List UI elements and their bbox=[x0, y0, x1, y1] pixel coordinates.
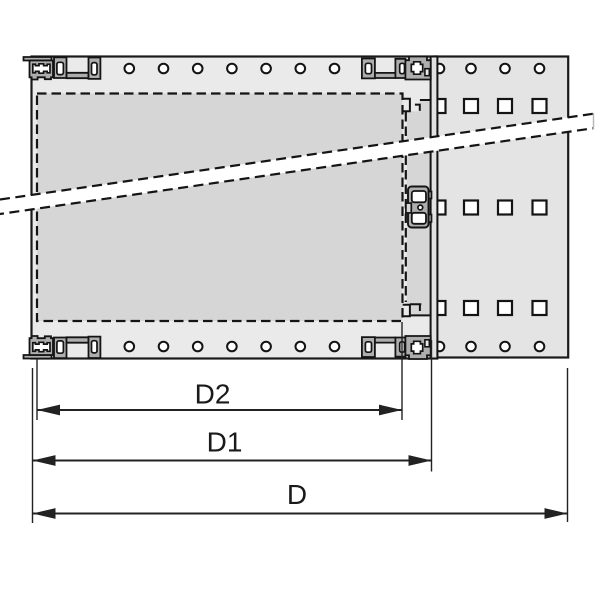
svg-text:D2: D2 bbox=[195, 378, 231, 409]
svg-text:D: D bbox=[287, 479, 307, 510]
svg-text:D1: D1 bbox=[207, 427, 243, 458]
